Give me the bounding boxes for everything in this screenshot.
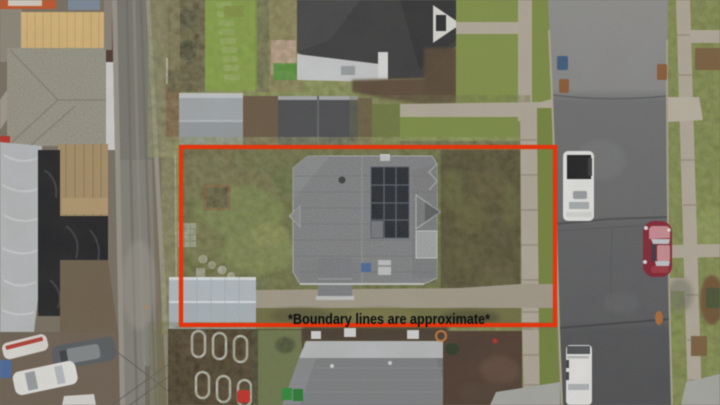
svg-text:*Boundary lines are approximat: *Boundary lines are approximate* xyxy=(288,312,490,328)
